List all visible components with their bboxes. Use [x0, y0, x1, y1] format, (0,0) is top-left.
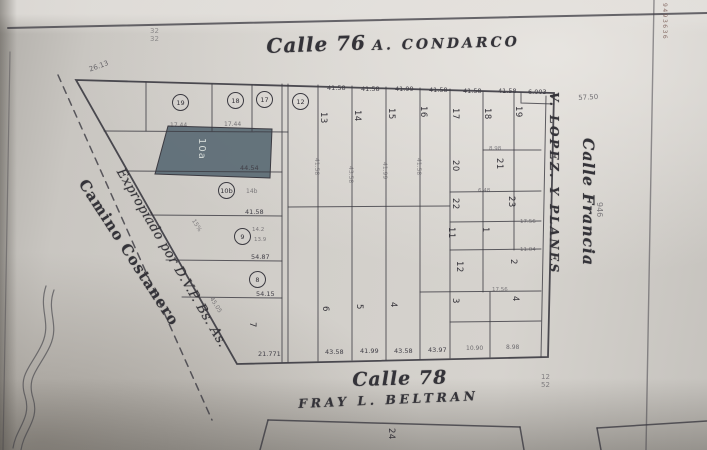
- stacked-mark-line: 52: [541, 382, 550, 390]
- plat-map-photo: Calle 76 A. CONDARCO Calle 78 FRAY L. BE…: [0, 0, 707, 450]
- circled-lot-number: 12: [292, 93, 309, 110]
- dimension-annotation: 44.54: [240, 164, 259, 172]
- lot-number: 6: [320, 306, 330, 312]
- dimension-annotation: 8.98: [506, 344, 519, 351]
- dimension-annotation: 14.2: [252, 227, 264, 233]
- dimension-annotation: 41.58: [498, 87, 517, 95]
- dimension-annotation: 17.44: [170, 122, 187, 129]
- dimension-annotation: 17.56: [520, 219, 536, 225]
- dimension-annotation: 17.56: [492, 287, 508, 293]
- lot-number: 3: [450, 298, 460, 304]
- dimension-annotation: 14b: [246, 188, 257, 195]
- dimension-annotation: 41.99: [395, 85, 414, 93]
- dimension-annotation: 11.04: [520, 247, 536, 253]
- stacked-mark-line: 32: [150, 36, 159, 44]
- dimension-annotation: 54.87: [251, 253, 270, 261]
- dimension-annotation: 41.58: [463, 87, 482, 95]
- stacked-mark: 1252: [541, 374, 550, 389]
- dimension-annotation: 41.58: [313, 158, 320, 175]
- dimension-annotation: 43.58: [394, 347, 413, 355]
- stacked-mark: 3232: [150, 28, 159, 43]
- lot-number: 14: [352, 110, 362, 122]
- lot-number: 19: [513, 106, 523, 118]
- dimension-annotation: 41.99: [360, 347, 379, 355]
- circled-lot-number: 19: [172, 94, 189, 111]
- circled-lot-number: 10b: [218, 182, 235, 199]
- dimension-annotation: 57.50: [578, 93, 598, 102]
- dimension-annotation: 946: [595, 202, 604, 217]
- dimension-annotation: 41.99: [381, 162, 388, 179]
- annotation-layer: 41.5841.5841.9941.5841.5841.586.00357.50…: [0, 0, 707, 450]
- lot-number: 18: [482, 108, 492, 120]
- dimension-annotation: 41.58: [361, 85, 380, 93]
- dimension-annotation: 43.58: [347, 166, 354, 183]
- dimension-annotation: 43.58: [325, 348, 344, 356]
- dimension-annotation: 21.771: [258, 350, 281, 358]
- dimension-annotation: 41.58: [327, 84, 346, 92]
- dimension-annotation: 15%: [190, 218, 203, 233]
- circled-lot-number: 9: [234, 228, 251, 245]
- lot-number: 4: [388, 302, 398, 308]
- lot-number: 12: [454, 261, 464, 273]
- circled-lot-number: 18: [227, 92, 244, 109]
- lot-number: 13: [318, 112, 328, 124]
- dimension-annotation: 8.98: [489, 146, 501, 152]
- lot-number: 11: [446, 227, 456, 239]
- dimension-annotation: 6.48: [478, 188, 490, 194]
- dimension-annotation: 45.05: [208, 296, 223, 314]
- lot-number: 22: [450, 198, 460, 210]
- dimension-annotation: 6.003: [528, 88, 547, 96]
- dimension-annotation: 13.9: [254, 237, 266, 243]
- dimension-annotation: 10.90: [466, 345, 483, 352]
- lot-number: 16: [418, 106, 428, 118]
- dimension-annotation: 43.97: [428, 346, 447, 354]
- dimension-annotation: 54.15: [256, 290, 275, 298]
- lot-number: 7: [247, 322, 257, 328]
- lot-number: 17: [450, 108, 460, 120]
- lot-number: 15: [386, 108, 396, 120]
- lot-number: 20: [450, 160, 460, 172]
- dimension-annotation: 41.58: [415, 158, 422, 175]
- circled-lot-number: 17: [256, 91, 273, 108]
- lot-number: 21: [494, 158, 504, 170]
- lot-number: 23: [506, 196, 516, 208]
- circled-lot-number: 8: [249, 271, 266, 288]
- lot-number: 4: [510, 296, 520, 302]
- dimension-annotation: 41.58: [245, 208, 264, 216]
- dimension-annotation: 17.44: [224, 121, 241, 128]
- lot-number: 5: [354, 304, 364, 310]
- lot-number: 24: [386, 428, 396, 440]
- dimension-annotation: 26.13: [88, 59, 110, 73]
- dimension-annotation: 41.58: [429, 86, 448, 94]
- lot-number: 1: [480, 227, 490, 233]
- lot-number: 2: [508, 259, 518, 265]
